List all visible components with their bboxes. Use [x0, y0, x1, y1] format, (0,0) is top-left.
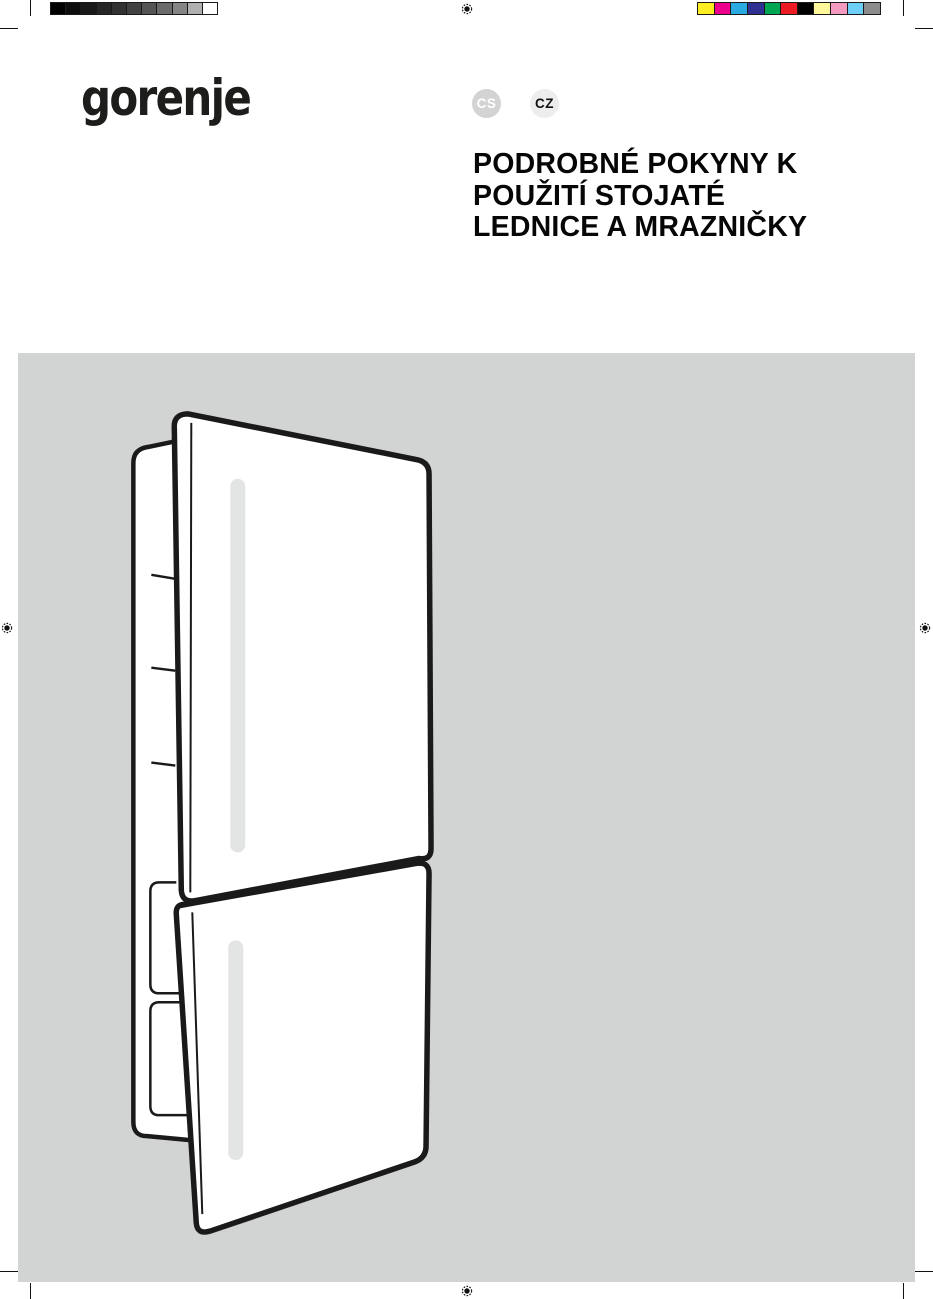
freezer-door: [176, 863, 429, 1232]
manual-cover-page: { "page": { "background": "#ffffff", "wi…: [0, 0, 933, 1299]
calibration-swatch: [831, 3, 848, 14]
calibration-swatch: [864, 3, 880, 14]
registration-mark-icon: [1, 622, 13, 634]
page-title: PODROBNÉ POKYNY K POUŽITÍ STOJATÉ LEDNIC…: [473, 149, 873, 244]
calibration-swatch: [814, 3, 831, 14]
grayscale-calibration-bar: [50, 2, 218, 15]
registration-mark-icon: [461, 3, 473, 15]
illustration-panel: [18, 353, 915, 1282]
calibration-swatch: [127, 3, 142, 14]
calibration-swatch: [188, 3, 203, 14]
calibration-swatch: [715, 3, 732, 14]
crop-mark-bottom-left-h: [0, 1271, 18, 1272]
freezer-door-outline: [176, 863, 429, 1232]
crop-mark-bottom-right-h: [915, 1271, 933, 1272]
language-badge-cs: CS: [472, 89, 501, 118]
calibration-swatch: [157, 3, 172, 14]
calibration-swatch: [112, 3, 127, 14]
language-badge-cz: CZ: [530, 89, 559, 118]
crop-mark-top-right-h: [915, 28, 933, 29]
calibration-swatch: [731, 3, 748, 14]
page-title-line-2: POUŽITÍ STOJATÉ: [473, 181, 873, 213]
calibration-swatch: [97, 3, 112, 14]
registration-mark-icon: [919, 622, 931, 634]
calibration-swatch: [173, 3, 188, 14]
crop-mark-top-left-h: [0, 28, 18, 29]
registration-mark-icon: [461, 1285, 473, 1297]
calibration-swatch: [748, 3, 765, 14]
freezer-door-handle-groove: [228, 940, 243, 1160]
calibration-swatch: [798, 3, 815, 14]
calibration-swatch: [203, 3, 217, 14]
calibration-swatch: [81, 3, 96, 14]
fridge-door: [174, 414, 431, 901]
fridge-door-handle-groove: [230, 479, 245, 853]
calibration-swatch: [765, 3, 782, 14]
calibration-swatch: [66, 3, 81, 14]
language-badge-cz-label: CZ: [535, 96, 554, 111]
brand-logo: gorenje: [81, 68, 250, 128]
calibration-swatch: [848, 3, 865, 14]
calibration-swatch: [698, 3, 715, 14]
color-calibration-bar: [697, 2, 881, 15]
crop-mark-top-right-v: [903, 0, 904, 16]
fridge-freezer-illustration: [18, 353, 915, 1282]
crop-mark-top-left-v: [30, 0, 31, 16]
crop-mark-bottom-left-v: [30, 1283, 31, 1299]
language-badge-cs-label: CS: [477, 96, 497, 111]
fridge-door-edge-line: [190, 423, 191, 892]
calibration-swatch: [142, 3, 157, 14]
crop-mark-bottom-right-v: [903, 1283, 904, 1299]
fridge-door-outline: [174, 414, 431, 901]
calibration-swatch: [781, 3, 798, 14]
calibration-swatch: [51, 3, 66, 14]
page-title-line-3: LEDNICE A MRAZNIČKY: [473, 212, 873, 244]
page-title-line-1: PODROBNÉ POKYNY K: [473, 149, 873, 181]
